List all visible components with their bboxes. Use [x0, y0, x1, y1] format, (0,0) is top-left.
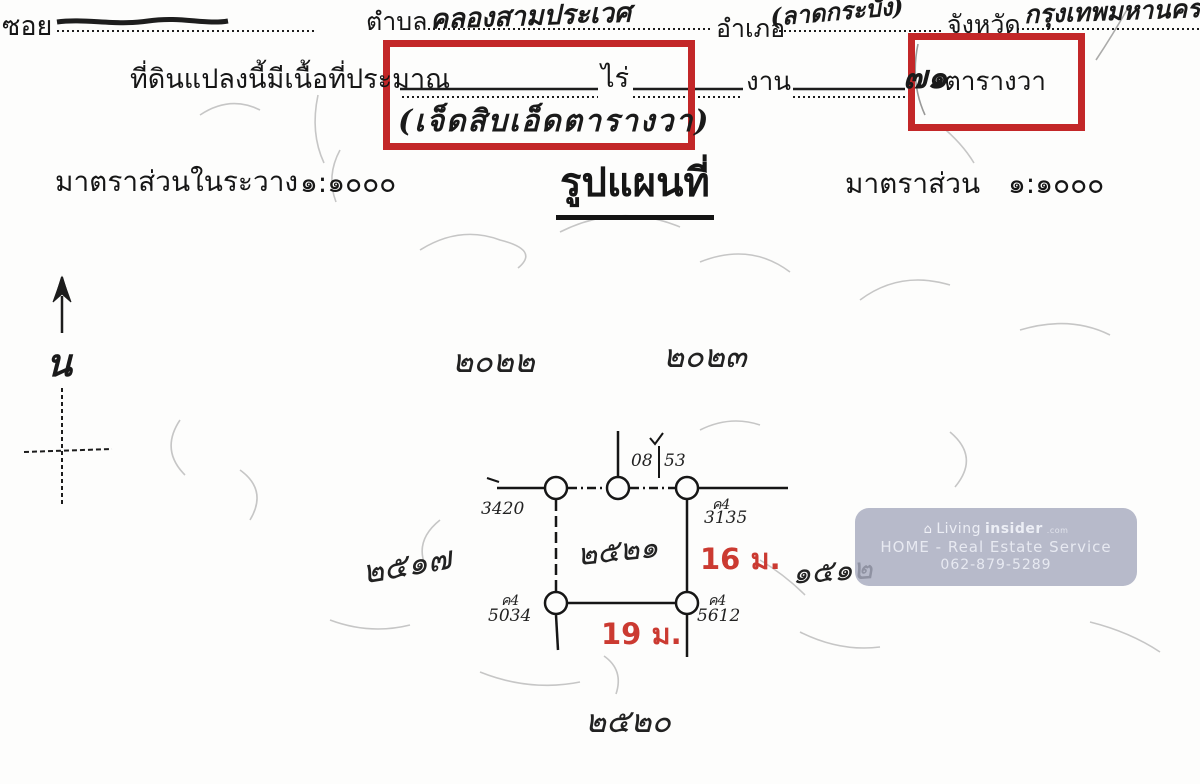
scale-left-value: ๑:๑๐๐๐	[300, 161, 396, 205]
parcel-number-top-right: ๒๐๒๓	[663, 331, 747, 382]
map-title: รูปแผนที่	[556, 150, 714, 220]
home-icon: ⌂	[924, 522, 933, 537]
rai-label: ไร่	[601, 56, 629, 99]
marker-bottom-left-num: 5034	[488, 606, 531, 626]
ngan-label: งาน	[746, 61, 791, 102]
watermark-tagline: HOME - Real Estate Service	[880, 538, 1111, 556]
dimension-right: 16 ม.	[700, 536, 781, 582]
north-label: น	[46, 332, 72, 393]
watermark-badge: ⌂ Living insider .com HOME - Real Estate…	[855, 508, 1137, 586]
watermark-brand: ⌂ Living insider .com	[924, 521, 1069, 537]
marker-top-mid-right: 53	[664, 451, 686, 471]
province-label: จังหวัด	[947, 5, 1021, 45]
province-value: กรุงเทพมหานคร	[1023, 0, 1200, 35]
tambon-value: คลองสามประเวศ	[429, 0, 632, 40]
marker-top-left-num: 3420	[481, 499, 524, 519]
area-words-value: (เจ็ดสิบเอ็ดตารางวา)	[398, 98, 710, 145]
scale-right-label: มาตราส่วน	[845, 162, 980, 206]
scanned-land-deed-page: ซอย ตำบล คลองสามประเวศ อำเภอ (ลาดกระบัง)…	[0, 0, 1200, 784]
dimension-bottom: 19 ม.	[601, 611, 682, 657]
watermark-brand-bold: insider	[985, 521, 1043, 537]
sqwa-value: ๗๑	[903, 52, 947, 103]
parcel-number-center: ๒๕๒๑	[575, 524, 661, 579]
scale-left-label: มาตราส่วนในระวาง	[55, 160, 298, 204]
watermark-brand-tld: .com	[1047, 526, 1069, 535]
marker-bottom-right-num: 5612	[697, 606, 740, 626]
parcel-number-top-left: ๒๐๒๒	[452, 336, 535, 387]
watermark-brand-prefix: Living	[936, 521, 981, 537]
area-prefix: ที่ดินแปลงนี้มีเนื้อที่ประมาณ	[130, 57, 450, 100]
sqwa-label: ตารางวา	[944, 61, 1046, 102]
parcel-number-bottom: ๒๕๒๐	[585, 696, 671, 747]
tambon-label: ตำบล	[366, 2, 427, 42]
soi-label: ซอย	[2, 4, 52, 47]
scale-right-value: ๑:๑๐๐๐	[1008, 162, 1104, 206]
watermark-phone: 062-879-5289	[940, 557, 1051, 573]
marker-top-mid-left: 08	[631, 451, 653, 471]
marker-top-right-num: 3135	[704, 508, 747, 528]
